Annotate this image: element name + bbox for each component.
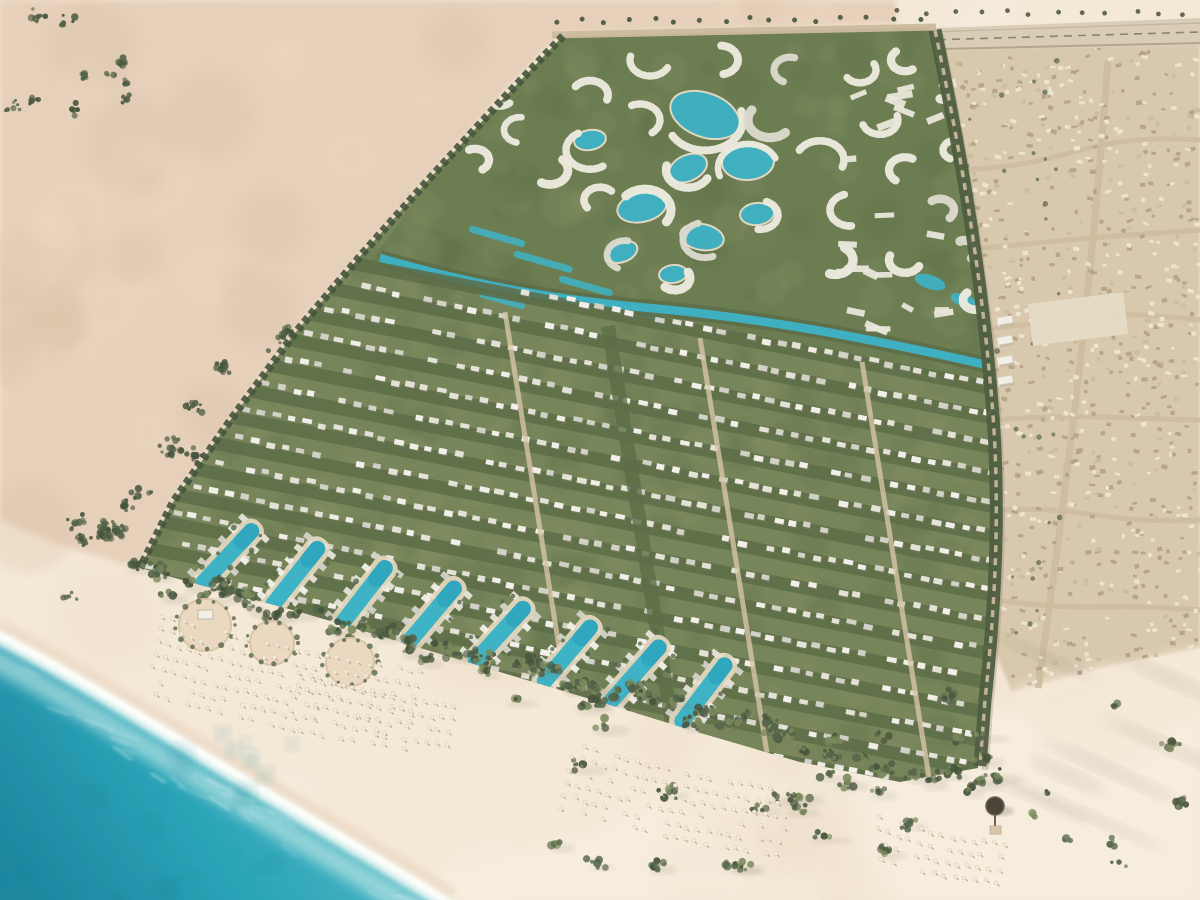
aerial-resort-render (0, 0, 1200, 900)
scene-canvas (0, 0, 1200, 900)
